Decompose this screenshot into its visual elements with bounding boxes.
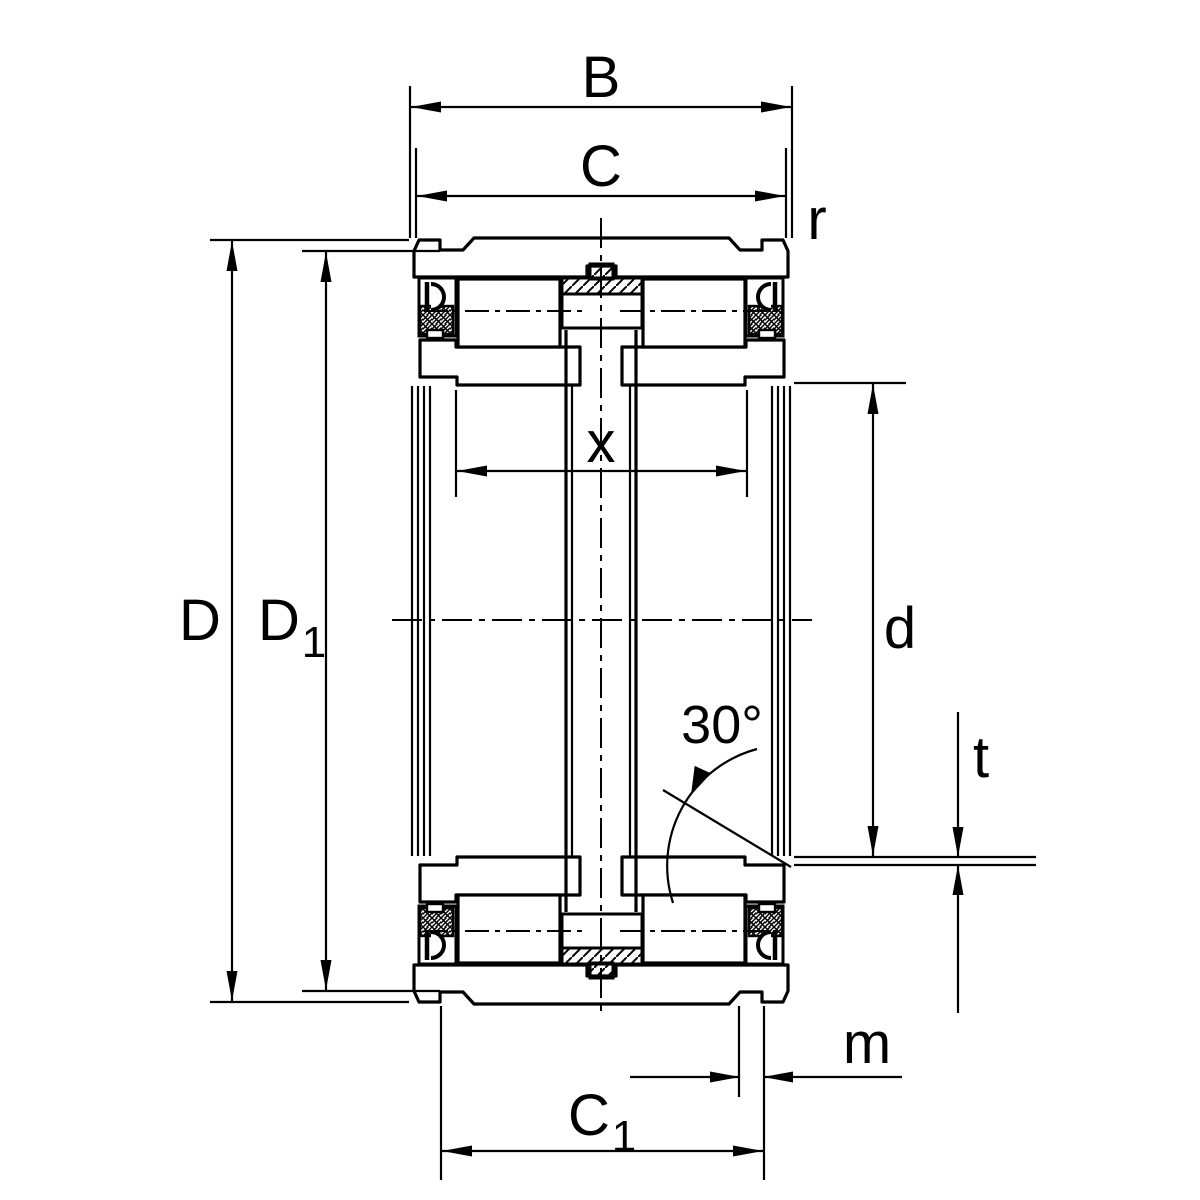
- dimension-d: d: [794, 383, 916, 856]
- roller-bottom-left: [458, 895, 560, 963]
- label-t: t: [973, 725, 989, 790]
- bearing-section: [392, 218, 812, 1012]
- label-C1-sub: 1: [612, 1112, 636, 1161]
- seal-bottom-left: [419, 904, 456, 964]
- label-m: m: [843, 1011, 891, 1076]
- label-D1-base: D: [258, 588, 300, 653]
- label-C1-base: C: [568, 1083, 610, 1148]
- roller-top-left: [458, 279, 560, 347]
- dimension-t: t: [794, 712, 1036, 1013]
- roller-bottom-right: [643, 895, 745, 963]
- label-x: x: [587, 410, 616, 475]
- seal-bottom-right: [746, 904, 783, 964]
- seal-top-right: [746, 278, 783, 338]
- roller-top-right: [643, 279, 745, 347]
- dimension-C1: C 1: [441, 1006, 763, 1180]
- technical-drawing-canvas: B C r x D D 1: [0, 0, 1200, 1200]
- dimension-m: m: [630, 1006, 902, 1180]
- seal-top-left: [419, 278, 456, 338]
- label-angle: 30°: [681, 695, 763, 755]
- label-D1-sub: 1: [302, 618, 326, 667]
- label-B: B: [582, 45, 621, 110]
- label-d: d: [884, 596, 916, 661]
- label-C: C: [580, 134, 622, 199]
- label-D: D: [179, 588, 221, 653]
- bearing-drawing: B C r x D D 1: [0, 0, 1200, 1200]
- label-r: r: [807, 187, 826, 252]
